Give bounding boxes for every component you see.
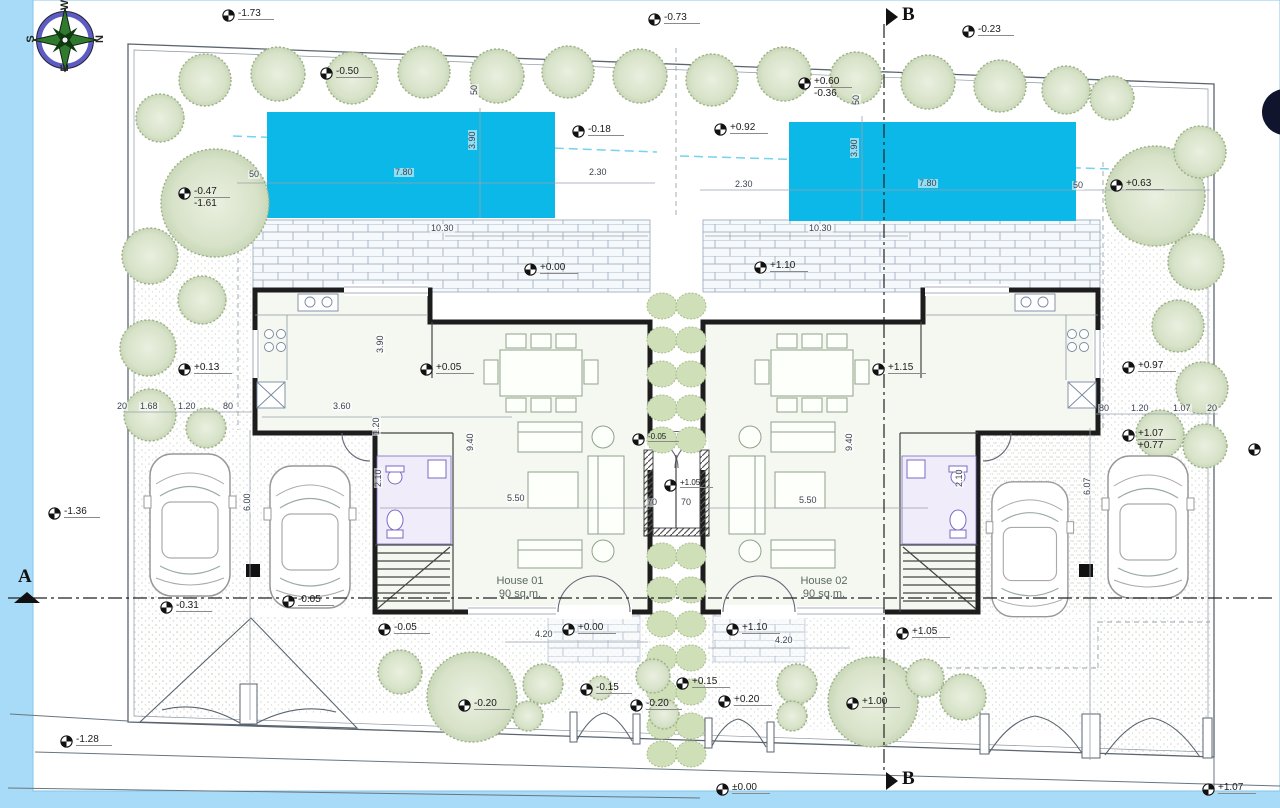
- level-value: +1.05: [680, 478, 713, 488]
- dimension-label: 5.50: [506, 494, 526, 503]
- dimension-label: 2.30: [734, 180, 754, 189]
- level-value: +0.00: [578, 622, 616, 634]
- dimension-label: 1.68: [139, 402, 159, 411]
- level-marker: -1.36: [48, 506, 100, 520]
- level-value: -0.18: [588, 124, 624, 136]
- level-marker-icon: [632, 433, 645, 446]
- level-marker-icon: [630, 699, 643, 712]
- level-value: +1.05: [912, 626, 950, 638]
- house-02-name: House 02: [764, 575, 884, 588]
- level-marker: -0.73: [648, 12, 700, 26]
- level-marker-icon: [178, 187, 191, 200]
- level-marker: +0.00: [524, 262, 578, 276]
- car: [264, 466, 356, 608]
- dimension-label: 20: [116, 402, 128, 411]
- dimension-label: 50: [1072, 181, 1084, 190]
- level-marker-icon: [798, 77, 811, 90]
- level-marker: +0.92: [714, 122, 768, 136]
- level-marker: +0.97: [1122, 360, 1176, 374]
- level-value: +0.97: [1138, 360, 1176, 372]
- level-marker: [1248, 442, 1264, 456]
- level-marker: -0.31: [160, 600, 212, 614]
- level-marker: +0.63: [1110, 178, 1164, 192]
- level-marker: +1.10: [726, 622, 780, 636]
- level-marker-icon: [962, 25, 975, 38]
- dimension-label: 1.20: [372, 416, 381, 436]
- level-value: +0.00: [540, 262, 578, 274]
- level-value: +1.15: [888, 362, 926, 374]
- level-marker: +0.05: [420, 362, 474, 376]
- level-marker-icon: [524, 263, 537, 276]
- level-marker-icon: [420, 363, 433, 376]
- dimension-label: 7.80: [394, 168, 414, 177]
- level-marker-icon: [1248, 443, 1261, 456]
- level-value: -0.05: [298, 594, 334, 606]
- dimension-label: 9.40: [845, 432, 854, 452]
- level-marker: +0.00: [562, 622, 616, 636]
- level-marker: +1.10: [754, 260, 808, 274]
- level-value: +0.63: [1126, 178, 1164, 190]
- dimension-label: 6.00: [243, 492, 252, 512]
- dimension-label: 50: [470, 84, 479, 96]
- level-value: +0.20: [734, 694, 772, 706]
- level-marker-icon: [222, 9, 235, 22]
- level-marker: -0.23: [962, 24, 1014, 38]
- level-value: -0.31: [176, 600, 212, 612]
- level-marker-icon: [676, 677, 689, 690]
- level-marker: +1.15: [872, 362, 926, 376]
- compass-letter-top: W: [59, 0, 71, 12]
- level-marker: -0.15: [580, 682, 632, 696]
- level-marker: +1.05: [896, 626, 950, 640]
- level-marker-icon: [572, 125, 585, 138]
- level-marker: ±0.00: [716, 782, 770, 796]
- level-marker-icon: [1110, 179, 1123, 192]
- dimension-label: 7.80: [918, 179, 938, 188]
- dimension-label: 10.30: [808, 224, 833, 233]
- level-marker-icon: [648, 13, 661, 26]
- compass-letter-left: S: [25, 32, 37, 46]
- level-value: -0.05: [648, 432, 679, 442]
- level-value: -1.73: [238, 8, 274, 20]
- level-marker: -0.05: [632, 432, 679, 446]
- level-value: -0.47 -1.61: [194, 186, 230, 209]
- dimension-label: 50: [248, 170, 260, 179]
- dimension-label: 2.30: [588, 168, 608, 177]
- level-value: -0.23: [978, 24, 1014, 36]
- level-marker-icon: [714, 123, 727, 136]
- level-marker: -0.18: [572, 124, 624, 138]
- level-marker: +1.07: [1202, 782, 1256, 796]
- level-value: -0.05: [394, 622, 430, 634]
- level-marker-icon: [872, 363, 885, 376]
- level-value: -0.20: [474, 698, 510, 710]
- level-marker: +0.15: [676, 676, 730, 690]
- level-marker: -0.47 -1.61: [178, 186, 230, 209]
- level-marker-icon: [718, 695, 731, 708]
- level-marker: +0.13: [178, 362, 232, 376]
- level-marker: +0.60 -0.36: [798, 76, 852, 99]
- level-marker-icon: [716, 783, 729, 796]
- level-marker: -0.20: [458, 698, 510, 712]
- dimension-label: 50: [852, 94, 861, 106]
- level-value: +0.60 -0.36: [814, 76, 852, 99]
- dimension-label: 5.50: [798, 496, 818, 505]
- dimension-label: 3.90: [850, 138, 859, 158]
- house-01-label: House 01 90 sq.m.: [460, 575, 580, 601]
- level-value: +1.07 +0.77: [1138, 428, 1176, 451]
- car: [986, 482, 1073, 617]
- dimension-label: 4.20: [774, 636, 794, 645]
- house-01-name: House 01: [460, 575, 580, 588]
- level-marker-icon: [378, 623, 391, 636]
- level-marker-icon: [320, 67, 333, 80]
- dimension-label: 2.10: [955, 468, 964, 488]
- level-value: +1.07: [1218, 782, 1256, 794]
- dimension-label: 9.40: [466, 432, 475, 452]
- level-marker-icon: [896, 627, 909, 640]
- level-marker-icon: [580, 683, 593, 696]
- level-marker-icon: [562, 623, 575, 636]
- level-marker: -1.28: [60, 734, 112, 748]
- house-01-area: 90 sq.m.: [460, 588, 580, 601]
- level-value: +0.05: [436, 362, 474, 374]
- level-value: -0.73: [664, 12, 700, 24]
- dimension-label: 3.90: [376, 334, 385, 354]
- level-marker-icon: [664, 479, 677, 492]
- car: [144, 454, 236, 596]
- house-02-area: 90 sq.m.: [764, 588, 884, 601]
- level-value: ±0.00: [732, 782, 770, 794]
- level-value: +1.10: [770, 260, 808, 272]
- dimension-label: 80: [222, 402, 234, 411]
- level-value: -0.15: [596, 682, 632, 694]
- dimension-label: 2.10: [374, 468, 383, 488]
- level-marker-icon: [60, 735, 73, 748]
- dimension-label: 1.07: [1172, 404, 1192, 413]
- level-marker-icon: [282, 595, 295, 608]
- dimension-label: 80: [1098, 404, 1110, 413]
- level-marker: -0.50: [320, 66, 372, 80]
- level-marker: +0.20: [718, 694, 772, 708]
- level-marker-icon: [846, 697, 859, 710]
- level-value: -0.50: [336, 66, 372, 78]
- dimension-label: 70: [680, 498, 692, 507]
- house-02-label: House 02 90 sq.m.: [764, 575, 884, 601]
- level-marker-icon: [1202, 783, 1215, 796]
- compass-letter-right: N: [94, 32, 106, 46]
- level-value: +0.15: [692, 676, 730, 688]
- level-value: -1.28: [76, 734, 112, 746]
- dimension-label: 4.20: [534, 630, 554, 639]
- level-value: +0.92: [730, 122, 768, 134]
- level-marker-icon: [160, 601, 173, 614]
- section-label-a: A: [18, 566, 32, 588]
- level-value: -0.20: [646, 698, 682, 710]
- level-value: -1.36: [64, 506, 100, 518]
- level-marker-icon: [726, 623, 739, 636]
- level-marker-icon: [754, 261, 767, 274]
- dimension-label: 20: [1206, 404, 1218, 413]
- level-marker-icon: [178, 363, 191, 376]
- level-marker: -1.73: [222, 8, 274, 22]
- dimension-label: 10.30: [430, 224, 455, 233]
- level-value: +1.00: [862, 696, 900, 708]
- level-marker: -0.05: [378, 622, 430, 636]
- site-plan-page: W N S E B B A House 01 90 sq.m. House 02…: [0, 0, 1280, 808]
- level-marker: -0.05: [282, 594, 334, 608]
- level-marker: -0.20: [630, 698, 682, 712]
- dimension-label: 6.07: [1083, 476, 1092, 496]
- section-label-b-top: B: [902, 4, 915, 26]
- compass-letter-bottom: E: [59, 61, 71, 75]
- level-marker: +1.05: [664, 478, 713, 492]
- pool-left: [267, 112, 555, 218]
- dimension-label: 70: [646, 498, 658, 507]
- dimension-label: 3.60: [332, 402, 352, 411]
- level-marker-icon: [1122, 361, 1135, 374]
- dimension-label: 1.20: [177, 402, 197, 411]
- dimension-label: 1.20: [1130, 404, 1150, 413]
- level-marker-icon: [458, 699, 471, 712]
- section-label-b-bottom: B: [902, 768, 915, 790]
- level-marker: +1.07 +0.77: [1122, 428, 1176, 451]
- level-marker-icon: [1122, 429, 1135, 442]
- car: [1102, 456, 1194, 598]
- pool-right: [789, 122, 1076, 221]
- dimension-label: 3.90: [468, 130, 477, 150]
- level-value: +1.10: [742, 622, 780, 634]
- level-value: +0.13: [194, 362, 232, 374]
- level-marker-icon: [48, 507, 61, 520]
- level-marker: +1.00: [846, 696, 900, 710]
